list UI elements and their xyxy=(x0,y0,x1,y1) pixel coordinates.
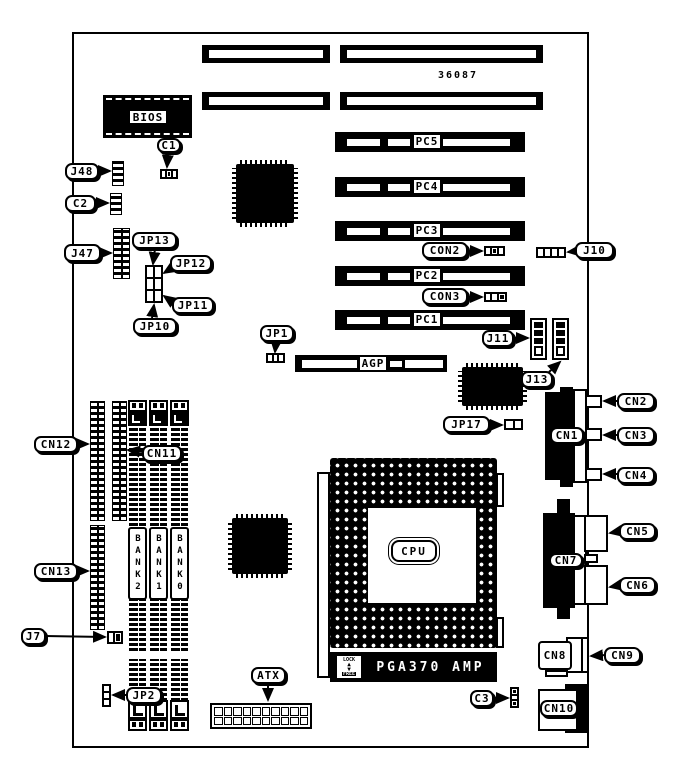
callout-jp11: JP11 xyxy=(172,297,214,314)
callout-j11: J11 xyxy=(482,330,514,347)
callout-cn5: CN5 xyxy=(619,523,656,540)
motherboard-layout-diagram: 36087 PC5 PC4 PC3 PC2 PC1 AGP BIOS xyxy=(0,0,683,773)
pci-slot-pc3: PC3 xyxy=(335,221,525,241)
callout-con2: CON2 xyxy=(422,242,468,259)
j13-connector-b xyxy=(552,318,569,360)
pci-slot-pc1: PC1 xyxy=(335,310,525,330)
callout-jp1: JP1 xyxy=(260,325,294,342)
callout-con3: CON3 xyxy=(422,288,468,305)
cn5-port-stub xyxy=(584,515,608,552)
callout-j47: J47 xyxy=(64,244,101,262)
free-text: FREE xyxy=(342,672,356,676)
callout-jp13: JP13 xyxy=(132,232,177,249)
c1-component xyxy=(160,169,178,179)
cn7-mid-notch xyxy=(584,554,598,563)
socket-tab-top xyxy=(496,473,504,507)
pci-slot-pc2: PC2 xyxy=(335,266,525,286)
callout-c2: C2 xyxy=(65,195,96,212)
socket-bottom-bar: LOCK ▲ ▼ FREE PGA370 AMP xyxy=(330,652,497,682)
callout-atx: ATX xyxy=(251,667,286,684)
chipset-qfp-south xyxy=(228,514,292,578)
callout-j7: J7 xyxy=(21,628,46,645)
cn13-header-strip xyxy=(90,525,105,630)
callout-cn6: CN6 xyxy=(619,577,656,594)
callout-c1: C1 xyxy=(157,138,181,153)
c2-component xyxy=(110,193,122,215)
pci-slot-pc4: PC4 xyxy=(335,177,525,197)
con3-jumper xyxy=(484,292,507,302)
cn12-header-strip-2 xyxy=(112,401,127,521)
slot-label-pc3: PC3 xyxy=(412,222,442,239)
jp17-jumper xyxy=(504,419,523,430)
bank2-label: BANK2 xyxy=(128,527,147,600)
cn3-port-stub xyxy=(585,428,602,441)
lock-free-lever-icon: LOCK ▲ ▼ FREE xyxy=(336,655,362,679)
isa-slot-2-right xyxy=(340,92,543,110)
callout-cn11: CN11 xyxy=(142,445,182,462)
socket-tab-bottom xyxy=(496,617,504,648)
isa-slot-2-left xyxy=(202,92,330,110)
heatsink-chip xyxy=(458,363,527,410)
callout-c3: C3 xyxy=(470,690,494,707)
bios-chip-label: BIOS xyxy=(128,109,168,125)
cn4-port-stub xyxy=(585,468,602,481)
callout-cn3: CN3 xyxy=(617,427,655,444)
board-part-number: 36087 xyxy=(408,70,508,81)
callout-j10: J10 xyxy=(575,242,614,259)
slot-label-pc5: PC5 xyxy=(412,133,442,150)
cn8-foot xyxy=(545,670,568,677)
callout-cn9: CN9 xyxy=(604,647,641,664)
socket-type-text: PGA370 AMP xyxy=(366,660,495,675)
slot-label-agp: AGP xyxy=(358,355,388,372)
bank1-label: BANK1 xyxy=(149,527,168,600)
callout-cn1: CN1 xyxy=(550,427,584,444)
slot-label-pc4: PC4 xyxy=(412,178,442,195)
callout-j48: J48 xyxy=(65,163,99,180)
j47-header xyxy=(113,228,130,279)
cpu-retention-rail xyxy=(317,472,330,678)
slot-label-pc1: PC1 xyxy=(412,311,442,328)
atx-power-connector xyxy=(210,703,312,729)
cpu-label: CPU xyxy=(391,540,437,562)
cn8-connector: CN8 xyxy=(538,641,572,670)
callout-cn13: CN13 xyxy=(34,563,78,580)
callout-cn12: CN12 xyxy=(34,436,78,453)
callout-jp12: JP12 xyxy=(170,255,212,272)
callout-cn2: CN2 xyxy=(617,393,655,410)
j48-header xyxy=(112,161,124,186)
cn6-port-stub xyxy=(584,565,608,605)
cn7-tab-top xyxy=(557,499,570,514)
bank0-label: BANK0 xyxy=(170,527,189,600)
callout-j13: J13 xyxy=(521,371,553,388)
cn7-tab-bottom xyxy=(557,606,570,619)
jp2-jumper xyxy=(102,684,111,707)
callout-cn7: CN7 xyxy=(549,553,583,568)
callout-jp2: JP2 xyxy=(126,687,162,704)
pci-slot-pc5: PC5 xyxy=(335,132,525,152)
chipset-qfp-north xyxy=(232,160,298,227)
j7-jumper xyxy=(107,631,123,644)
callout-jp10: JP10 xyxy=(133,318,177,335)
callout-jp17: JP17 xyxy=(443,416,490,433)
j11-connector-a xyxy=(530,318,547,360)
callout-cn10: CN10 xyxy=(540,700,578,717)
c3-component xyxy=(510,687,519,708)
callout-cn4: CN4 xyxy=(617,467,655,484)
isa-slot-1-right xyxy=(340,45,543,63)
slot-label-pc2: PC2 xyxy=(412,267,442,284)
jp10-13-jumper-block xyxy=(145,265,163,303)
jp1-jumper xyxy=(266,353,285,363)
cn1-tab-bottom xyxy=(560,478,573,487)
isa-slot-1-left xyxy=(202,45,330,63)
bios-chip: BIOS xyxy=(103,95,192,138)
cn12-header-strip-1 xyxy=(90,401,105,521)
j10-header xyxy=(536,247,566,258)
con2-jumper xyxy=(484,246,505,256)
cn2-port-stub xyxy=(585,395,602,408)
agp-slot: AGP xyxy=(295,355,447,372)
